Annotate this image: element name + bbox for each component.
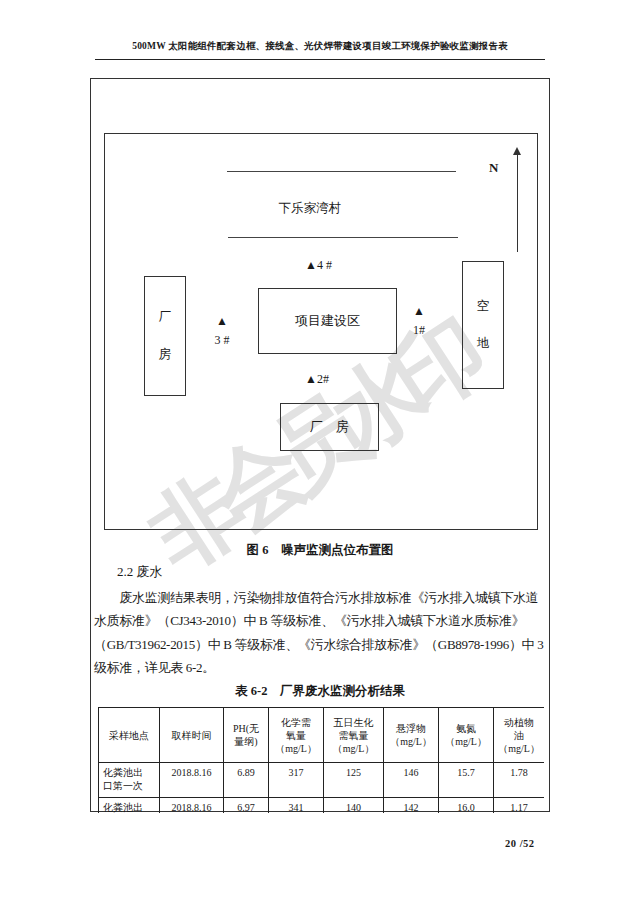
body-paragraph: 废水监测结果表明，污染物排放值符合污水排放标准《污水排入城镇下水道 水质标准》（…	[94, 586, 546, 679]
bottom-factory-label: 厂 房	[310, 418, 349, 436]
table-header-row: 采样地点 取样时间 PH(无 量纲) 化学需 氧量 （mg/L） 五日生化 需氧…	[99, 708, 545, 763]
monitoring-point-4: ▲4 #	[305, 256, 332, 275]
cell-ammonia: 16.0	[439, 798, 494, 814]
village-label: 下乐家湾村	[255, 200, 365, 217]
col-header-sample-time: 取样时间	[160, 708, 224, 763]
cell-bod5: 140	[324, 798, 384, 814]
table-row: 化粪池出 2018.8.16 6.97 341 140 142 16.0 1.1…	[99, 798, 545, 814]
vacant-land-label: 空 地	[477, 288, 490, 362]
north-arrowhead-icon	[513, 147, 521, 155]
cell-sample-time: 2018.8.16	[160, 763, 224, 798]
col-header-ammonia: 氨氮 （mg/L）	[439, 708, 494, 763]
cell-oil: 1.17	[494, 798, 545, 814]
col-header-ph: PH(无 量纲)	[224, 708, 269, 763]
monitoring-point-2: ▲2#	[305, 370, 329, 389]
project-area-label: 项目建设区	[295, 312, 360, 330]
table-title: 表 6-2 厂界废水监测分析结果	[91, 683, 549, 700]
header-divider	[95, 59, 545, 60]
report-content-frame: 下乐家湾村 N ▲4 # ▲ 3 # ▲ 1# ▲2# 厂 房 项目建设区 空 …	[90, 78, 550, 812]
cell-suspended-solids: 146	[384, 763, 439, 798]
cell-sample-time: 2018.8.16	[160, 798, 224, 814]
road-line-bottom	[228, 237, 458, 238]
noise-monitoring-diagram: 下乐家湾村 N ▲4 # ▲ 3 # ▲ 1# ▲2# 厂 房 项目建设区 空 …	[104, 133, 538, 530]
north-label: N	[489, 160, 498, 176]
wastewater-table-wrap: 采样地点 取样时间 PH(无 量纲) 化学需 氧量 （mg/L） 五日生化 需氧…	[98, 707, 544, 813]
table-row: 化粪池出 口第一次 2018.8.16 6.89 317 125 146 15.…	[99, 763, 545, 798]
north-arrow-icon	[517, 154, 518, 252]
bottom-factory-building: 厂 房	[280, 403, 379, 451]
cell-cod: 317	[269, 763, 324, 798]
col-header-bod5: 五日生化 需氧量 （mg/L）	[324, 708, 384, 763]
left-factory-label: 厂 房	[159, 299, 172, 373]
wastewater-table: 采样地点 取样时间 PH(无 量纲) 化学需 氧量 （mg/L） 五日生化 需氧…	[98, 707, 544, 813]
col-header-oil: 动植物 油 （mg/L）	[494, 708, 545, 763]
monitoring-point-1: ▲ 1#	[407, 302, 431, 340]
section-heading: 2.2 废水	[117, 563, 163, 581]
cell-suspended-solids: 142	[384, 798, 439, 814]
cell-cod: 341	[269, 798, 324, 814]
col-header-location: 采样地点	[99, 708, 160, 763]
page-title: 500MW 太阳能组件配套边框、接线盒、光伏焊带建设项目竣工环境保护验收监测报告…	[0, 40, 640, 53]
left-factory-building: 厂 房	[144, 276, 186, 396]
monitoring-point-3: ▲ 3 #	[207, 312, 237, 350]
col-header-suspended-solids: 悬浮物 （mg/L）	[384, 708, 439, 763]
cell-ph: 6.97	[224, 798, 269, 814]
cell-oil: 1.78	[494, 763, 545, 798]
figure-caption: 图 6 噪声监测点位布置图	[91, 542, 549, 559]
cell-ammonia: 15.7	[439, 763, 494, 798]
col-header-cod: 化学需 氧量 （mg/L）	[269, 708, 324, 763]
cell-bod5: 125	[324, 763, 384, 798]
page-number: 20 /52	[505, 838, 535, 849]
vacant-land-area: 空 地	[462, 261, 504, 389]
cell-location: 化粪池出 口第一次	[99, 763, 160, 798]
cell-location: 化粪池出	[99, 798, 160, 814]
road-line-top	[227, 171, 456, 172]
cell-ph: 6.89	[224, 763, 269, 798]
project-construction-area: 项目建设区	[258, 288, 397, 354]
